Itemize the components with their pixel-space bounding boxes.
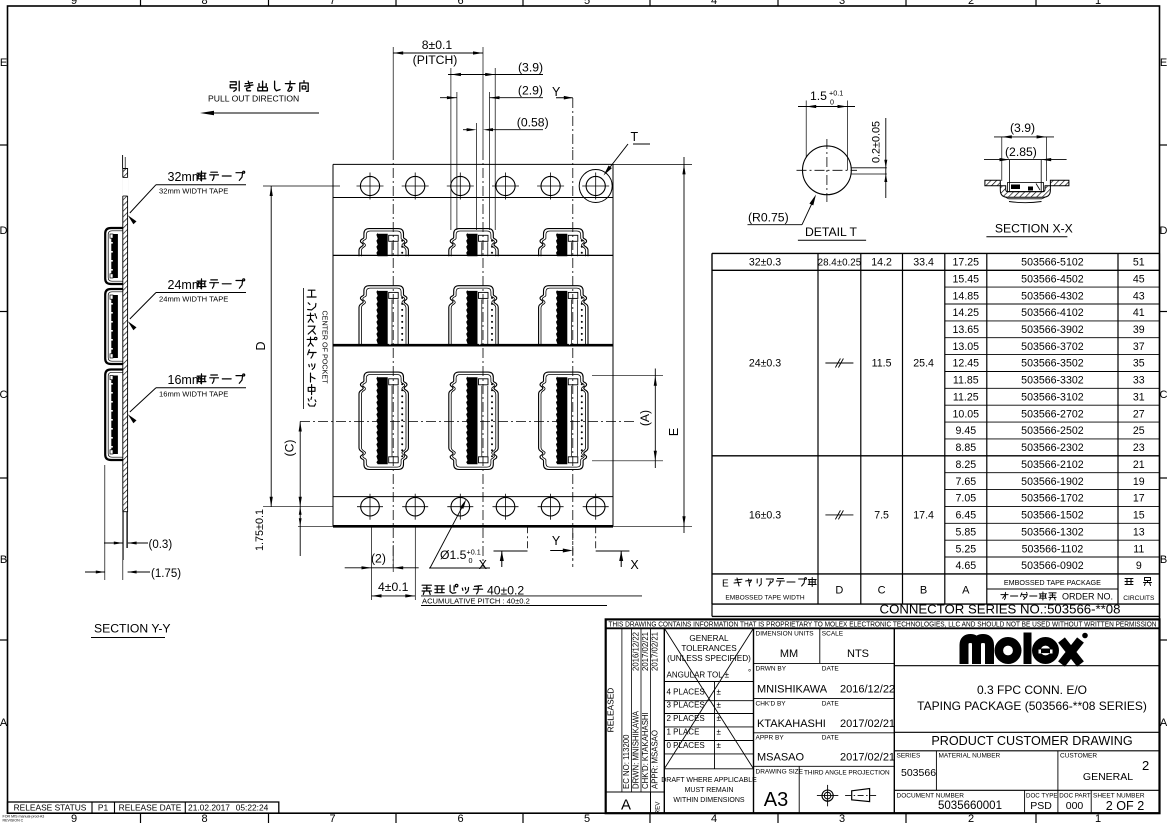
svg-text:MATERIAL NUMBER: MATERIAL NUMBER xyxy=(939,753,1001,760)
svg-text:DRAFT WHERE APPLICABLE: DRAFT WHERE APPLICABLE xyxy=(661,777,757,784)
svg-text:503566-4102: 503566-4102 xyxy=(1021,307,1084,319)
svg-text:0: 0 xyxy=(830,98,834,107)
svg-text:D: D xyxy=(835,585,843,597)
svg-text:(2.9): (2.9) xyxy=(518,84,543,98)
svg-text:A: A xyxy=(1160,717,1167,729)
svg-text:19: 19 xyxy=(1133,476,1145,488)
svg-text:A3: A3 xyxy=(764,789,788,811)
svg-text:8±0.1: 8±0.1 xyxy=(422,38,453,52)
svg-text:33.4: 33.4 xyxy=(913,257,934,269)
svg-text:6: 6 xyxy=(457,0,463,7)
svg-text:+0.1: +0.1 xyxy=(829,89,843,98)
svg-text:7.5: 7.5 xyxy=(874,510,889,522)
svg-text:Y: Y xyxy=(552,534,561,548)
svg-text:2016/12/22: 2016/12/22 xyxy=(840,684,895,696)
svg-text:15.45: 15.45 xyxy=(953,273,980,285)
svg-text:2017/02/21: 2017/02/21 xyxy=(641,632,650,671)
svg-text:MNISHIKAWA: MNISHIKAWA xyxy=(757,684,828,696)
svg-text:(1.75): (1.75) xyxy=(151,568,181,580)
svg-text:12.45: 12.45 xyxy=(953,358,980,370)
svg-text:KTAKAHASHI: KTAKAHASHI xyxy=(757,718,826,730)
svg-text:SECTION X-X: SECTION X-X xyxy=(995,222,1073,236)
svg-text:503566-4302: 503566-4302 xyxy=(1021,290,1084,302)
svg-text:21.02.2017: 21.02.2017 xyxy=(188,803,230,813)
svg-text:9.45: 9.45 xyxy=(955,425,976,437)
svg-text:503566-1102: 503566-1102 xyxy=(1022,543,1084,555)
svg-text:503566-3902: 503566-3902 xyxy=(1021,324,1084,336)
svg-text:7: 7 xyxy=(329,0,335,7)
svg-text:25: 25 xyxy=(1133,425,1145,437)
svg-text:15: 15 xyxy=(1133,510,1145,522)
svg-text:503566-1702: 503566-1702 xyxy=(1021,493,1084,505)
svg-text:(3.9): (3.9) xyxy=(1010,121,1035,135)
svg-text:SERIES: SERIES xyxy=(897,753,922,760)
svg-text:TOLERANCES: TOLERANCES xyxy=(681,644,737,653)
svg-text:503566-0902: 503566-0902 xyxy=(1021,560,1084,572)
svg-text:27: 27 xyxy=(1133,408,1145,420)
svg-text:41: 41 xyxy=(1133,307,1145,319)
svg-text:SCALE: SCALE xyxy=(822,631,844,638)
svg-text:(R0.75): (R0.75) xyxy=(748,211,789,225)
svg-text:1.5: 1.5 xyxy=(810,89,827,103)
svg-text:0: 0 xyxy=(469,556,473,565)
svg-text:DETAIL T: DETAIL T xyxy=(805,225,857,239)
svg-text:°: ° xyxy=(748,668,751,677)
svg-text:14.25: 14.25 xyxy=(953,307,980,319)
svg-text:5035660001: 5035660001 xyxy=(938,800,1002,812)
svg-text:GENERAL: GENERAL xyxy=(689,634,729,643)
svg-text:503566-1902: 503566-1902 xyxy=(1021,476,1084,488)
svg-text:P1: P1 xyxy=(98,803,109,813)
svg-text:7: 7 xyxy=(329,813,335,823)
svg-text:14.2: 14.2 xyxy=(871,257,892,269)
svg-text:13.65: 13.65 xyxy=(953,324,980,336)
svg-text:503566-3302: 503566-3302 xyxy=(1021,375,1084,387)
svg-text:Ø1.5: Ø1.5 xyxy=(440,548,467,562)
svg-text:NTS: NTS xyxy=(847,648,869,660)
svg-text:GENERAL: GENERAL xyxy=(1083,771,1133,783)
svg-text:2016/12/22: 2016/12/22 xyxy=(631,632,640,671)
svg-text:C: C xyxy=(0,389,8,401)
svg-text:RELEASED: RELEASED xyxy=(606,688,616,733)
svg-text:REV: REV xyxy=(655,801,662,815)
svg-text:39: 39 xyxy=(1133,324,1145,336)
svg-text:4±0.1: 4±0.1 xyxy=(378,580,409,594)
svg-text:E: E xyxy=(1160,57,1167,69)
svg-text:8: 8 xyxy=(201,0,207,7)
svg-text:ANGULAR TOL ±: ANGULAR TOL ± xyxy=(667,671,730,680)
svg-text:13.05: 13.05 xyxy=(953,341,980,353)
svg-text:(3.9): (3.9) xyxy=(518,61,543,75)
svg-text:2 PLACES: 2 PLACES xyxy=(667,714,705,723)
svg-text:REVISION C: REVISION C xyxy=(3,819,24,823)
svg-text:0.2±0.05: 0.2±0.05 xyxy=(871,121,883,163)
svg-text:23: 23 xyxy=(1133,442,1145,454)
svg-text:45: 45 xyxy=(1133,273,1145,285)
svg-text:±: ± xyxy=(717,728,722,737)
svg-text:CIRCUITS: CIRCUITS xyxy=(1123,595,1155,602)
svg-text:RELEASE STATUS: RELEASE STATUS xyxy=(14,803,87,813)
svg-text:503566-2302: 503566-2302 xyxy=(1021,442,1084,454)
svg-text:±: ± xyxy=(717,714,722,723)
svg-text:503566-2502: 503566-2502 xyxy=(1021,425,1084,437)
svg-text:CONNECTOR SERIES NO.:503566-**: CONNECTOR SERIES NO.:503566-**08 xyxy=(880,602,1121,617)
svg-text:24mm: 24mm xyxy=(168,278,203,292)
svg-text:16mm WIDTH TAPE: 16mm WIDTH TAPE xyxy=(159,390,228,399)
svg-text:PULL OUT DIRECTION: PULL OUT DIRECTION xyxy=(208,94,299,104)
svg-text:±: ± xyxy=(717,741,722,750)
svg-text:2: 2 xyxy=(1142,758,1149,773)
svg-text:32±0.3: 32±0.3 xyxy=(749,257,781,269)
svg-text:503566-1502: 503566-1502 xyxy=(1021,510,1084,522)
svg-text:DOCUMENT NUMBER: DOCUMENT NUMBER xyxy=(897,793,965,800)
svg-text:8: 8 xyxy=(201,813,207,823)
svg-text:24mm WIDTH TAPE: 24mm WIDTH TAPE xyxy=(159,294,228,303)
svg-text:43: 43 xyxy=(1133,290,1145,302)
svg-text:11.5: 11.5 xyxy=(872,358,892,370)
svg-text:THIRD ANGLE PROJECTION: THIRD ANGLE PROJECTION xyxy=(804,770,890,777)
svg-text:17.4: 17.4 xyxy=(913,510,934,522)
svg-text:B: B xyxy=(920,585,927,597)
svg-text:9: 9 xyxy=(71,0,77,7)
svg-text:3: 3 xyxy=(839,0,845,7)
svg-text:ORDER NO.: ORDER NO. xyxy=(1062,592,1113,602)
svg-text:11.25: 11.25 xyxy=(953,392,979,404)
svg-text:5: 5 xyxy=(584,813,590,823)
svg-text:1.75±0.1: 1.75±0.1 xyxy=(254,509,266,551)
svg-text:EC NO: 113200: EC NO: 113200 xyxy=(622,734,631,789)
svg-text:DATE: DATE xyxy=(822,735,840,742)
svg-text:WITHIN DIMENSIONS: WITHIN DIMENSIONS xyxy=(673,797,744,804)
svg-text:503566-3702: 503566-3702 xyxy=(1021,341,1084,353)
svg-text:17.25: 17.25 xyxy=(953,257,980,269)
svg-text:DOC TYPE: DOC TYPE xyxy=(1026,793,1058,800)
svg-text:A: A xyxy=(962,585,970,597)
svg-text:DOC PART: DOC PART xyxy=(1059,793,1091,800)
svg-text:4: 4 xyxy=(711,0,717,7)
svg-text:ACUMULATIVE PITCH : 40±0.2: ACUMULATIVE PITCH : 40±0.2 xyxy=(422,597,530,606)
svg-text:E: E xyxy=(667,428,681,436)
svg-text:503566-2102: 503566-2102 xyxy=(1021,459,1084,471)
svg-text:4.65: 4.65 xyxy=(955,560,976,572)
svg-text:3: 3 xyxy=(839,813,845,823)
svg-text:DRWN: MNISHIKAWA: DRWN: MNISHIKAWA xyxy=(631,710,640,789)
svg-text:E: E xyxy=(0,57,7,69)
svg-text:E: E xyxy=(722,579,729,590)
svg-text:2: 2 xyxy=(968,813,974,823)
svg-text:2: 2 xyxy=(968,0,974,7)
svg-text:28.4±0.25: 28.4±0.25 xyxy=(818,258,862,269)
svg-text:EMBOSSED TAPE PACKAGE: EMBOSSED TAPE PACKAGE xyxy=(1004,578,1101,587)
svg-text:13: 13 xyxy=(1133,526,1145,538)
svg-text:EMBOSSED TAPE WIDTH: EMBOSSED TAPE WIDTH xyxy=(725,595,804,602)
svg-text:MM: MM xyxy=(780,648,798,660)
svg-text:0.3 FPC CONN. E/O: 0.3 FPC CONN. E/O xyxy=(977,683,1087,697)
svg-text:T: T xyxy=(631,130,639,144)
svg-text:503566-2702: 503566-2702 xyxy=(1021,408,1084,420)
svg-text:3 PLACES: 3 PLACES xyxy=(667,701,705,710)
svg-text:(C): (C) xyxy=(283,440,297,457)
svg-text:9: 9 xyxy=(71,813,77,823)
svg-text:(PITCH): (PITCH) xyxy=(413,53,458,67)
svg-text:503566: 503566 xyxy=(901,767,936,779)
svg-text:(UNLESS SPECIFIED): (UNLESS SPECIFIED) xyxy=(667,654,751,663)
svg-text:PSD: PSD xyxy=(1030,800,1052,812)
svg-text:D: D xyxy=(0,225,8,237)
svg-text:503566-5102: 503566-5102 xyxy=(1021,257,1084,269)
svg-text:33: 33 xyxy=(1133,375,1145,387)
svg-text:16±0.3: 16±0.3 xyxy=(749,510,781,522)
svg-text:DIMENSION UNITS: DIMENSION UNITS xyxy=(756,631,815,638)
svg-text:(2.85): (2.85) xyxy=(1005,145,1037,159)
svg-text:2 OF 2: 2 OF 2 xyxy=(1106,799,1145,813)
svg-text:32mm WIDTH TAPE: 32mm WIDTH TAPE xyxy=(159,187,228,196)
svg-text:0 PLACES: 0 PLACES xyxy=(667,741,705,750)
svg-text:RELEASE DATE: RELEASE DATE xyxy=(119,803,182,813)
svg-text:2017/02/21: 2017/02/21 xyxy=(840,718,895,730)
svg-text:11.85: 11.85 xyxy=(953,375,979,387)
svg-text:(2): (2) xyxy=(371,552,386,566)
svg-text:31: 31 xyxy=(1133,392,1145,404)
svg-text:X: X xyxy=(479,558,488,572)
svg-text:A: A xyxy=(621,797,631,814)
svg-text:B: B xyxy=(1160,554,1167,566)
svg-text:MSASAO: MSASAO xyxy=(757,752,805,764)
svg-text:05:22:24: 05:22:24 xyxy=(236,803,269,813)
svg-text:9: 9 xyxy=(1136,560,1142,572)
svg-text:D: D xyxy=(1160,225,1167,237)
svg-text:DATE: DATE xyxy=(822,666,840,673)
svg-text:503566-1302: 503566-1302 xyxy=(1021,526,1084,538)
svg-text:000: 000 xyxy=(1066,800,1084,812)
svg-text:B: B xyxy=(0,554,7,566)
svg-text:32mm: 32mm xyxy=(168,170,203,184)
svg-text:503566-4502: 503566-4502 xyxy=(1021,273,1084,285)
svg-text:7.05: 7.05 xyxy=(955,493,976,505)
svg-text:2017/02/21: 2017/02/21 xyxy=(840,752,895,764)
svg-text:21: 21 xyxy=(1133,459,1145,471)
svg-text:APPR BY: APPR BY xyxy=(756,735,785,742)
svg-text:DATE: DATE xyxy=(822,701,840,708)
svg-text:8.85: 8.85 xyxy=(955,442,976,454)
svg-text:6: 6 xyxy=(457,813,463,823)
svg-text:2017/02/21: 2017/02/21 xyxy=(650,632,659,671)
svg-text:MUST REMAIN: MUST REMAIN xyxy=(685,787,734,794)
svg-text:25.4: 25.4 xyxy=(913,358,934,370)
svg-text:1: 1 xyxy=(1095,0,1101,7)
svg-text:(A): (A) xyxy=(638,410,652,426)
svg-text:5.85: 5.85 xyxy=(955,526,976,538)
svg-text:Y: Y xyxy=(552,85,561,99)
svg-text:TAPING PACKAGE (503566-**08 SE: TAPING PACKAGE (503566-**08 SERIES) xyxy=(917,699,1147,713)
svg-text:5: 5 xyxy=(584,0,590,7)
svg-text:11: 11 xyxy=(1133,543,1144,555)
svg-text:CHK'D: KTAKAHASHI: CHK'D: KTAKAHASHI xyxy=(641,712,650,789)
svg-text:±: ± xyxy=(717,688,722,697)
svg-text:A: A xyxy=(0,717,8,729)
svg-text:DRWN BY: DRWN BY xyxy=(756,666,787,673)
svg-text:16mm: 16mm xyxy=(168,373,203,387)
svg-text:1: 1 xyxy=(1095,813,1101,823)
svg-text:PRODUCT CUSTOMER DRAWING: PRODUCT CUSTOMER DRAWING xyxy=(931,734,1132,748)
svg-text:37: 37 xyxy=(1133,341,1145,353)
svg-text:CENTER OF POCKET: CENTER OF POCKET xyxy=(321,310,330,384)
svg-text:6.45: 6.45 xyxy=(955,510,976,522)
svg-text:24±0.3: 24±0.3 xyxy=(749,358,781,370)
svg-text:8.25: 8.25 xyxy=(955,459,976,471)
svg-text:51: 51 xyxy=(1133,257,1145,269)
svg-text:±: ± xyxy=(717,701,722,710)
svg-text:C: C xyxy=(878,585,886,597)
svg-text:THIS DRAWING CONTAINS INFORMAT: THIS DRAWING CONTAINS INFORMATION THAT I… xyxy=(609,621,1157,628)
svg-text:1 PLACE: 1 PLACE xyxy=(667,728,700,737)
svg-text:10.05: 10.05 xyxy=(953,408,980,420)
svg-text:DRAWING SIZE: DRAWING SIZE xyxy=(756,769,804,776)
svg-text:X: X xyxy=(630,558,639,572)
svg-text:4: 4 xyxy=(711,813,717,823)
svg-text:SECTION Y-Y: SECTION Y-Y xyxy=(94,622,171,636)
svg-text:5.25: 5.25 xyxy=(955,543,976,555)
svg-text:503566-3502: 503566-3502 xyxy=(1021,358,1084,370)
svg-text:CHK'D BY: CHK'D BY xyxy=(756,701,787,708)
svg-text:(0.58): (0.58) xyxy=(517,116,549,130)
svg-text:40±0.2: 40±0.2 xyxy=(487,584,524,598)
svg-text:4 PLACES: 4 PLACES xyxy=(667,688,705,697)
svg-text:35: 35 xyxy=(1133,358,1145,370)
svg-text:7.65: 7.65 xyxy=(955,476,976,488)
svg-text:503566-3102: 503566-3102 xyxy=(1021,392,1084,404)
svg-text:APPR: MSASAO: APPR: MSASAO xyxy=(650,730,659,789)
svg-text:CUSTOMER: CUSTOMER xyxy=(1060,753,1097,760)
svg-text:D: D xyxy=(254,341,268,350)
svg-text:(0.3): (0.3) xyxy=(149,539,173,551)
svg-text:14.85: 14.85 xyxy=(953,290,980,302)
svg-text:C: C xyxy=(1160,389,1167,401)
svg-text:17: 17 xyxy=(1133,493,1145,505)
